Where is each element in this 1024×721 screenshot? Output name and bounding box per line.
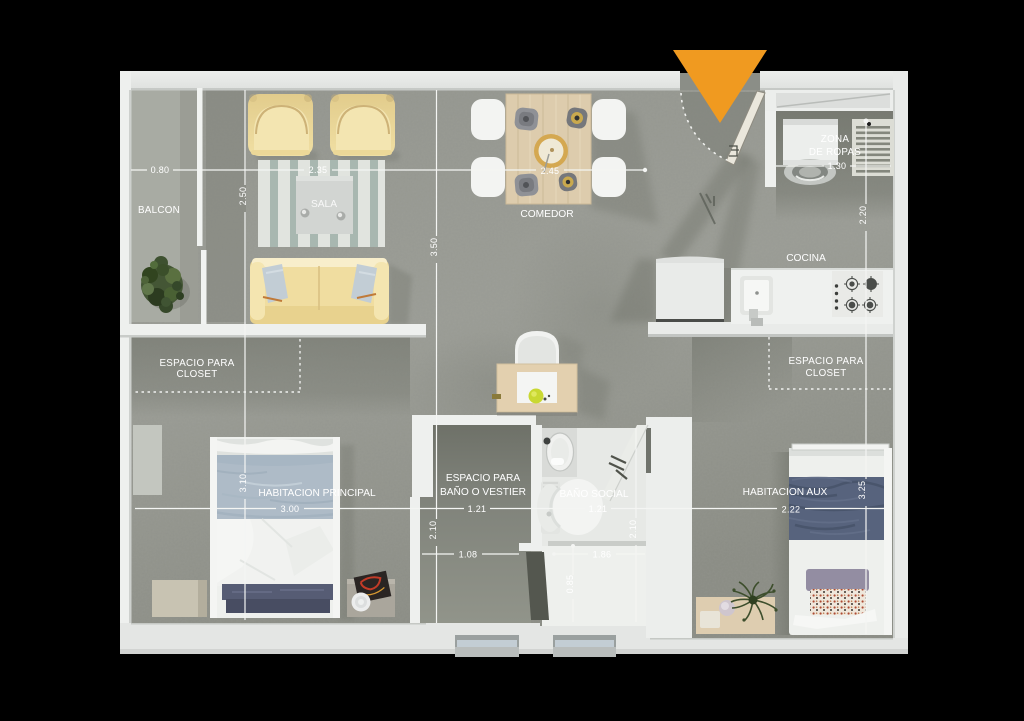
svg-text:2.10: 2.10: [428, 521, 438, 540]
svg-text:3.00: 3.00: [281, 504, 300, 514]
svg-text:2.22: 2.22: [782, 505, 801, 515]
svg-text:2.35: 2.35: [309, 165, 328, 175]
svg-text:2.50: 2.50: [238, 187, 248, 206]
svg-text:0.85: 0.85: [565, 575, 575, 594]
svg-text:SALA: SALA: [311, 199, 337, 210]
svg-text:BALCON: BALCON: [138, 205, 180, 216]
svg-text:HABITACION AUX: HABITACION AUX: [743, 487, 828, 498]
svg-text:1.30: 1.30: [828, 161, 847, 171]
svg-text:ESPACIO PARA: ESPACIO PARA: [446, 473, 521, 484]
svg-text:1.86: 1.86: [593, 550, 612, 560]
svg-text:CLOSET: CLOSET: [806, 368, 847, 379]
svg-text:3.25: 3.25: [857, 481, 867, 500]
svg-text:COCINA: COCINA: [786, 253, 826, 264]
svg-text:DE ROPAS: DE ROPAS: [809, 147, 861, 158]
svg-text:BAÑO SOCIAL: BAÑO SOCIAL: [559, 487, 628, 500]
svg-text:0.80: 0.80: [151, 165, 170, 175]
svg-text:3.10: 3.10: [238, 474, 248, 493]
svg-text:3.50: 3.50: [429, 238, 439, 257]
svg-text:2.20: 2.20: [858, 206, 868, 225]
svg-text:COMEDOR: COMEDOR: [520, 209, 573, 220]
svg-text:ESPACIO PARA: ESPACIO PARA: [788, 356, 863, 367]
svg-text:2.45: 2.45: [541, 166, 560, 176]
svg-text:1.08: 1.08: [459, 550, 478, 560]
svg-text:BAÑO O VESTIER: BAÑO O VESTIER: [440, 485, 526, 498]
svg-text:ESPACIO PARA: ESPACIO PARA: [159, 358, 234, 369]
svg-text:CLOSET: CLOSET: [177, 369, 218, 380]
svg-text:2.10: 2.10: [628, 520, 638, 539]
svg-text:HABITACION PRINCIPAL: HABITACION PRINCIPAL: [258, 488, 376, 499]
svg-text:1.21: 1.21: [589, 504, 608, 514]
svg-text:1.21: 1.21: [468, 504, 487, 514]
svg-text:ZONA: ZONA: [821, 134, 850, 145]
